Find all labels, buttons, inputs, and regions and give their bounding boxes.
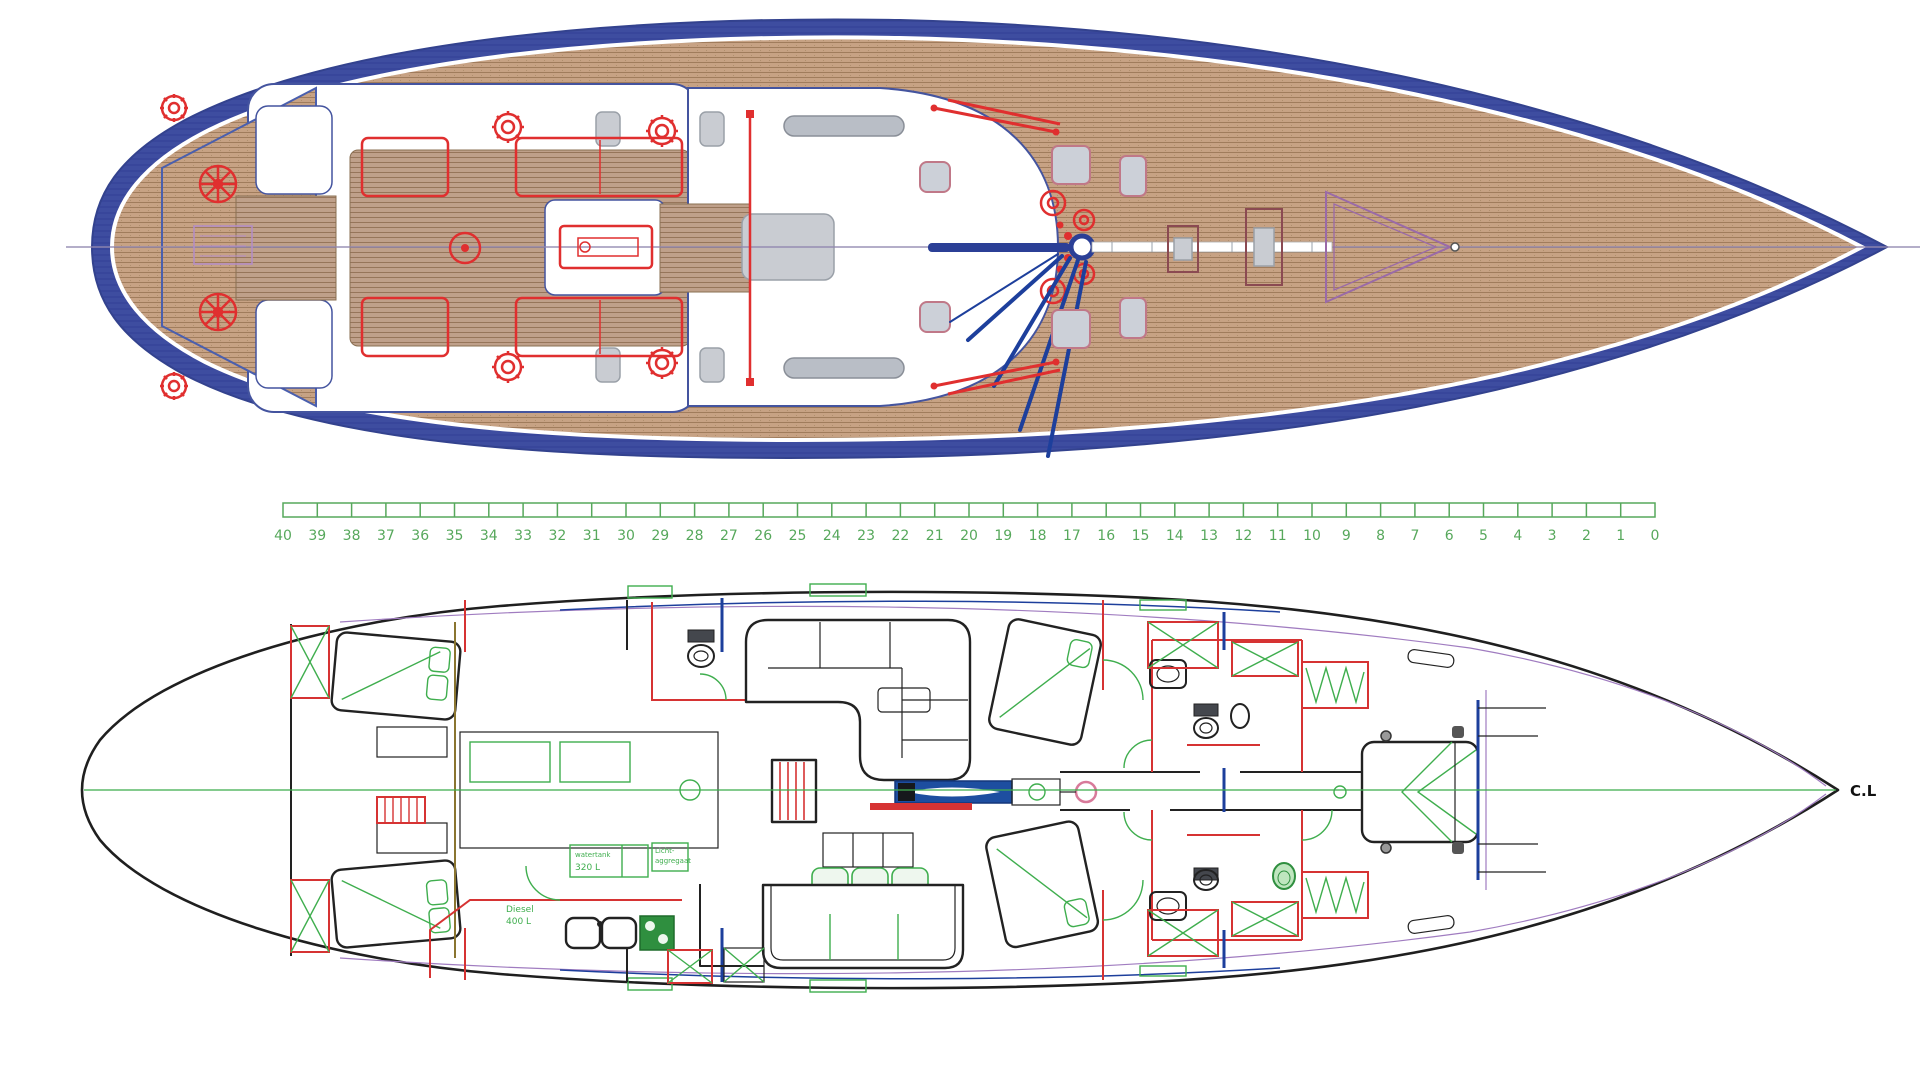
ruler-number: 7 <box>1410 528 1419 544</box>
ruler-number: 6 <box>1445 528 1454 544</box>
ruler-number: 20 <box>960 528 978 544</box>
hatch-icon <box>1052 310 1090 348</box>
sink-icon <box>566 918 600 948</box>
ruler-number: 27 <box>720 528 738 544</box>
hatch-icon <box>1052 146 1090 184</box>
ruler-number: 2 <box>1582 528 1591 544</box>
ruler-number: 23 <box>857 528 875 544</box>
tank-label: Licht- <box>655 847 675 855</box>
handrail-stbd <box>784 358 904 378</box>
tank-label: 320 L <box>575 863 600 873</box>
ruler-number: 24 <box>823 528 841 544</box>
helm-seat-stbd <box>256 300 332 388</box>
steering-wheel-icon <box>200 166 236 202</box>
helm-walkway <box>236 196 336 300</box>
ruler-number: 39 <box>308 528 326 544</box>
stove-icon <box>640 916 674 950</box>
ruler-number: 12 <box>1234 528 1252 544</box>
ruler-number: 36 <box>411 528 429 544</box>
ruler-number: 35 <box>446 528 464 544</box>
companionway-deck <box>660 204 750 292</box>
hatch-icon <box>920 162 950 192</box>
ruler-number: 32 <box>548 528 566 544</box>
aft-berth <box>331 632 461 721</box>
ruler-number: 11 <box>1269 528 1287 544</box>
mast-icon <box>1071 236 1093 258</box>
helm-seat-port <box>256 106 332 194</box>
ruler-number: 34 <box>480 528 498 544</box>
ruler-number: 30 <box>617 528 635 544</box>
ruler-number: 38 <box>343 528 361 544</box>
hatch-icon <box>700 112 724 146</box>
ruler-number: 13 <box>1200 528 1218 544</box>
deck-plan <box>66 19 1920 458</box>
jib-track <box>1092 242 1332 252</box>
ruler-number: 9 <box>1342 528 1351 544</box>
ruler-number: 4 <box>1513 528 1522 544</box>
hatch-icon <box>1120 156 1146 196</box>
yacht-ga-drawing: 4039383736353433323130292827262524232221… <box>0 0 1920 1067</box>
interior-plan: watertank 320 L Licht- aggregaat Diesel … <box>82 584 1877 992</box>
boom <box>928 243 1070 252</box>
handrail-port <box>784 116 904 136</box>
ruler-number: 3 <box>1548 528 1557 544</box>
tank-label: aggregaat <box>655 857 691 865</box>
ruler-number: 37 <box>377 528 395 544</box>
aft-berth <box>331 860 461 949</box>
ruler-number: 16 <box>1097 528 1115 544</box>
hatch-icon <box>1120 298 1146 338</box>
companionway-stairs <box>772 760 816 822</box>
steering-wheel-icon <box>200 294 236 330</box>
ruler-number: 15 <box>1132 528 1150 544</box>
hatch-icon <box>700 348 724 382</box>
centerline-label: C.L <box>1850 782 1877 800</box>
ruler-number: 14 <box>1166 528 1184 544</box>
ruler-number: 31 <box>583 528 601 544</box>
winch-icon <box>160 94 188 122</box>
svg-text:400 L: 400 L <box>506 917 531 927</box>
ruler-number: 18 <box>1029 528 1047 544</box>
ruler-number: 28 <box>686 528 704 544</box>
ruler-number: 1 <box>1616 528 1625 544</box>
frame-ruler: 4039383736353433323130292827262524232221… <box>274 503 1659 544</box>
sink-icon <box>602 918 636 948</box>
ruler-number: 26 <box>754 528 772 544</box>
hatch-icon <box>920 302 950 332</box>
ruler-number: 25 <box>789 528 807 544</box>
bow-fitting <box>1451 243 1459 251</box>
winch-icon <box>160 372 188 400</box>
ruler-number: 17 <box>1063 528 1081 544</box>
ruler-number: 10 <box>1303 528 1321 544</box>
ruler-number: 21 <box>926 528 944 544</box>
ruler-number: 22 <box>891 528 909 544</box>
ruler-number: 33 <box>514 528 532 544</box>
ruler-number: 0 <box>1651 528 1660 544</box>
ruler-number: 29 <box>651 528 669 544</box>
tank-label: watertank <box>575 851 611 859</box>
ruler-number: 8 <box>1376 528 1385 544</box>
ruler-number: 5 <box>1479 528 1488 544</box>
svg-text:Diesel: Diesel <box>506 905 534 915</box>
ruler-number: 19 <box>994 528 1012 544</box>
ruler-number: 40 <box>274 528 292 544</box>
